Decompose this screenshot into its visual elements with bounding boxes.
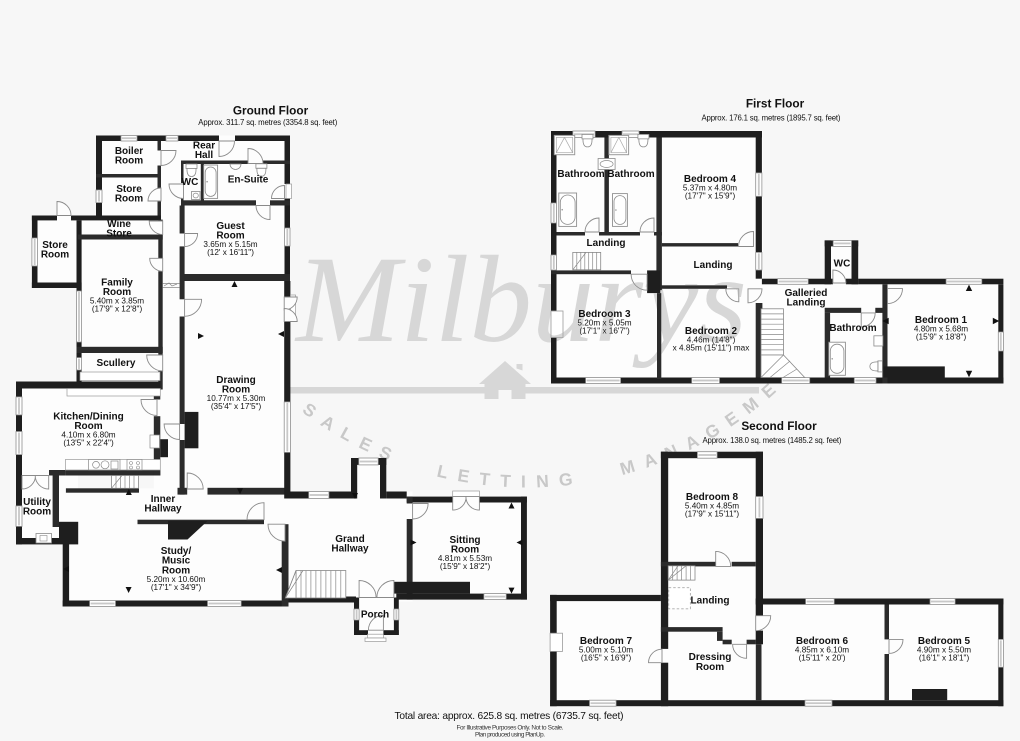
svg-text:(16'5" x 16'9"): (16'5" x 16'9")	[581, 653, 632, 662]
svg-text:Room: Room	[115, 194, 143, 205]
svg-text:Plan produced using PlanUp.: Plan produced using PlanUp.	[475, 732, 545, 739]
svg-text:Approx. 311.7 sq. metres (3354: Approx. 311.7 sq. metres (3354.8 sq. fee…	[198, 118, 337, 127]
svg-text:WC: WC	[834, 259, 851, 270]
svg-text:Approx. 176.1 sq. metres (1895: Approx. 176.1 sq. metres (1895.7 sq. fee…	[702, 114, 841, 123]
svg-text:Total area: approx. 625.8 sq.: Total area: approx. 625.8 sq. metres (67…	[395, 711, 624, 722]
svg-text:(16'1" x 18'1"): (16'1" x 18'1")	[919, 653, 970, 662]
svg-text:For Illustrative Purposes Only: For Illustrative Purposes Only. Not to S…	[457, 725, 564, 732]
svg-text:Milburys: Milburys	[294, 231, 747, 368]
svg-text:(13'5" x 22'4"): (13'5" x 22'4")	[63, 439, 114, 448]
svg-text:(12' x 16'11"): (12' x 16'11")	[207, 248, 254, 257]
svg-text:Room: Room	[41, 250, 69, 261]
svg-text:(15'11" x 20'): (15'11" x 20')	[799, 653, 846, 662]
svg-text:First Floor: First Floor	[746, 97, 805, 111]
svg-text:(15'9" x 18'8"): (15'9" x 18'8")	[916, 332, 967, 341]
svg-text:Room: Room	[696, 662, 724, 673]
svg-text:Landing: Landing	[691, 596, 730, 607]
svg-text:En-Suite: En-Suite	[228, 175, 269, 186]
svg-text:Bathroom: Bathroom	[829, 323, 876, 334]
svg-text:Porch: Porch	[361, 610, 389, 621]
svg-text:Room: Room	[115, 156, 143, 167]
svg-text:Second Floor: Second Floor	[741, 419, 817, 433]
svg-text:Bathroom: Bathroom	[557, 169, 604, 180]
svg-text:Scullery: Scullery	[97, 358, 136, 369]
svg-text:(17'9" x 15'11"): (17'9" x 15'11")	[685, 509, 740, 518]
svg-text:(35'4" x 17'5"): (35'4" x 17'5")	[211, 402, 262, 411]
svg-text:(15'9" x 18'2"): (15'9" x 18'2")	[440, 562, 491, 571]
svg-text:Landing: Landing	[787, 298, 826, 309]
svg-text:(17'9" x 12'8"): (17'9" x 12'8")	[92, 305, 143, 314]
svg-text:WC: WC	[182, 177, 199, 188]
svg-text:Room: Room	[23, 507, 51, 518]
svg-text:(17'1" x 34'9"): (17'1" x 34'9")	[151, 583, 202, 592]
svg-text:(17'7" x 15'9"): (17'7" x 15'9")	[685, 191, 736, 200]
svg-text:Store: Store	[106, 229, 132, 240]
svg-text:Approx. 138.0 sq. metres (1485: Approx. 138.0 sq. metres (1485.2 sq. fee…	[703, 436, 842, 445]
svg-text:Ground Floor: Ground Floor	[233, 103, 309, 117]
svg-text:Hall: Hall	[195, 150, 214, 161]
svg-text:Hallway: Hallway	[144, 504, 182, 515]
svg-text:Bathroom: Bathroom	[607, 169, 654, 180]
svg-text:Hallway: Hallway	[331, 544, 369, 555]
